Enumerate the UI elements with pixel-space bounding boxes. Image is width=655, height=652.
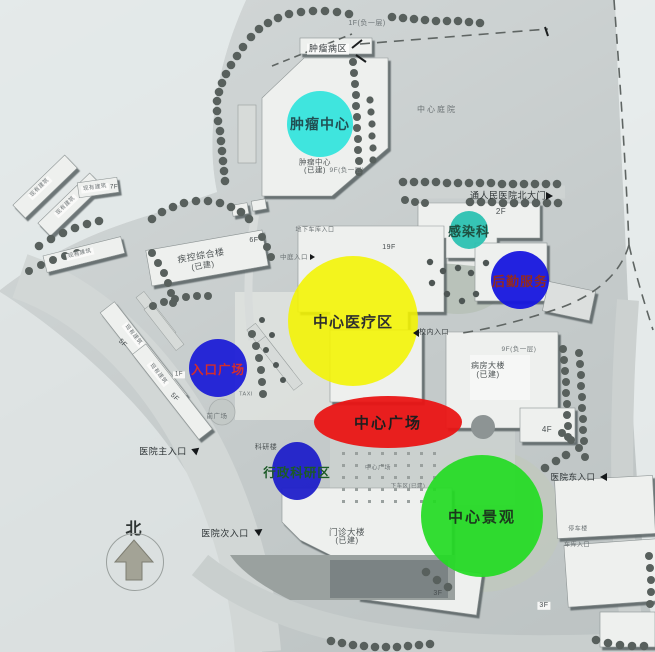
label-floor-9f-a: 9F(负一层) — [330, 167, 365, 175]
zone-tumor-center: 肿瘤中心 — [287, 91, 353, 157]
label-floor-1f-small: 1F — [173, 371, 185, 378]
label-second-entrance: 医院次入口 — [201, 529, 249, 540]
label-research-building: 科研楼 — [255, 444, 278, 452]
zone-central-medical: 中心医疗区 — [288, 256, 418, 386]
label-front-plaza: 前广场 — [207, 413, 228, 421]
label-tumor-ward: 肿瘤病区 — [307, 44, 349, 55]
label-plaza-paving: 中心广场 — [365, 465, 391, 472]
zone-central-plaza: 中心广场 — [314, 396, 462, 448]
label-east-entrance: 医院东入口 — [550, 472, 595, 482]
label-floor-7f: 7F — [110, 184, 118, 191]
zone-entrance-plaza: 入口广场 — [189, 339, 247, 397]
label-campus-entrance: 校内入口 — [419, 329, 449, 337]
label-floor-3f-a: 3F — [433, 590, 442, 598]
zone-admin-research: 行政科研区 — [272, 442, 322, 500]
north-gate-arrow-icon — [546, 192, 553, 200]
zone-logistics-service: 后勤服务 — [491, 251, 549, 309]
label-parking-building: 停车楼 — [568, 526, 588, 533]
label-floor-4f: 4F — [542, 425, 552, 435]
hospital-site-plan: 肿瘤中心 感染科 后勤服务 中心医疗区 入口广场 中心广场 行政科研区 中心景观… — [0, 0, 655, 652]
label-basement-entrance: 地下车库入口 — [295, 227, 334, 234]
zone-infection-dept: 感染科 — [450, 211, 488, 249]
north-arrow-icon — [104, 532, 164, 592]
label-floor-19f: 19F — [382, 244, 396, 252]
label-atrium-entrance: 中庭入口 — [280, 254, 308, 262]
atrium-entrance-arrow-icon — [310, 254, 315, 260]
label-floor-9f-b: 9F(负一层) — [502, 346, 537, 354]
east-entrance-arrow-icon — [600, 473, 607, 481]
label-outpatient-sub: (已建) — [335, 536, 358, 546]
label-main-entrance: 医院主入口 — [139, 447, 187, 458]
zone-central-landscape: 中心景观 — [421, 455, 543, 577]
label-tumor-built-sub: (已建) — [304, 166, 326, 175]
label-taxi: TAXI — [239, 392, 253, 399]
label-floor-3f-b: 3F — [537, 602, 550, 610]
label-floor-1f-basement: 1F(负一层) — [348, 20, 385, 28]
label-central-courtyard: 中心庭院 — [417, 105, 457, 115]
label-parking-entrance: 车库入口 — [564, 542, 590, 549]
label-floor-6f: 6F — [249, 237, 258, 245]
label-dropoff-area: 下车区(已建) — [391, 484, 426, 491]
label-north-gate: 通人民医院北大门 — [470, 191, 546, 202]
label-ward-sub: (已建) — [476, 370, 499, 380]
label-floor-2f: 2F — [496, 207, 506, 217]
